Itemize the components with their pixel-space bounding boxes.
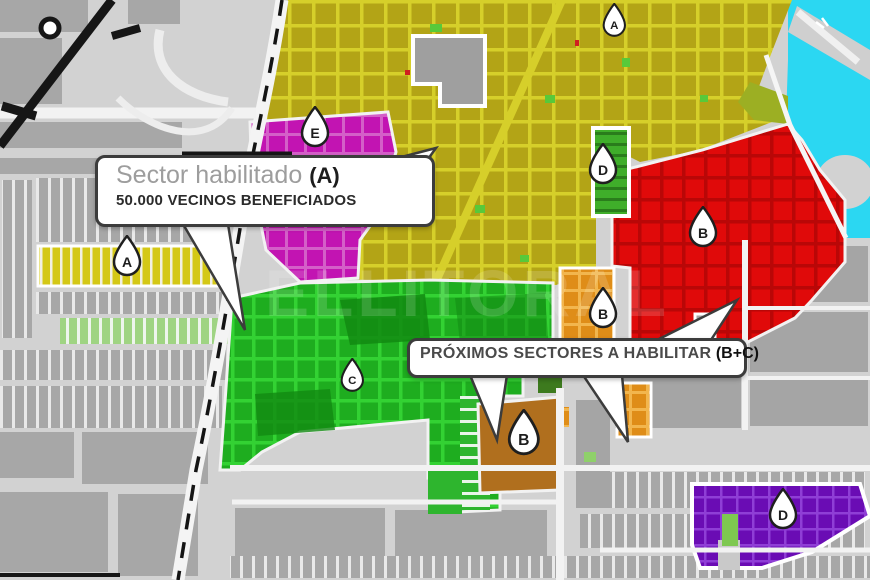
pin-a-top[interactable]: A [602, 3, 627, 37]
pin-label: A [112, 254, 142, 270]
pin-d-top[interactable]: D [588, 143, 618, 185]
pin-label: E [300, 125, 330, 141]
callout-sector-habilitado: Sector habilitado (A) 50.000 VECINOS BEN… [95, 155, 435, 227]
pin-c[interactable]: C [340, 358, 365, 392]
callout-text: PRÓXIMOS SECTORES A HABILITAR [420, 345, 711, 362]
pin-label: B [688, 225, 718, 241]
callout-sector-tag: (A) [309, 163, 340, 188]
city-map [0, 0, 870, 580]
callout-title: Sector habilitado [116, 161, 302, 189]
pin-label: D [588, 162, 618, 178]
pin-d-purple[interactable]: D [768, 488, 798, 530]
pin-label: B [588, 306, 618, 322]
pin-e[interactable]: E [300, 106, 330, 148]
pin-b-orange[interactable]: B [588, 287, 618, 329]
pin-b-brown[interactable]: B [507, 409, 541, 456]
callout-proximos-sectores: PRÓXIMOS SECTORES A HABILITAR (B+C) [407, 338, 747, 378]
pin-label: A [602, 19, 627, 32]
pin-b-red[interactable]: B [688, 206, 718, 248]
map-screenshot: ELLITORAL A E D B B C B D A Sector habil… [0, 0, 870, 580]
pin-label: B [507, 430, 541, 448]
pin-a-left[interactable]: A [112, 235, 142, 277]
pin-label: C [340, 374, 365, 387]
callout-title-row: Sector habilitado (A) [116, 160, 422, 191]
callout-sector-tag: (B+C) [716, 345, 759, 362]
pin-label: D [768, 507, 798, 523]
callout-subtitle: 50.000 VECINOS BENEFICIADOS [116, 192, 422, 209]
